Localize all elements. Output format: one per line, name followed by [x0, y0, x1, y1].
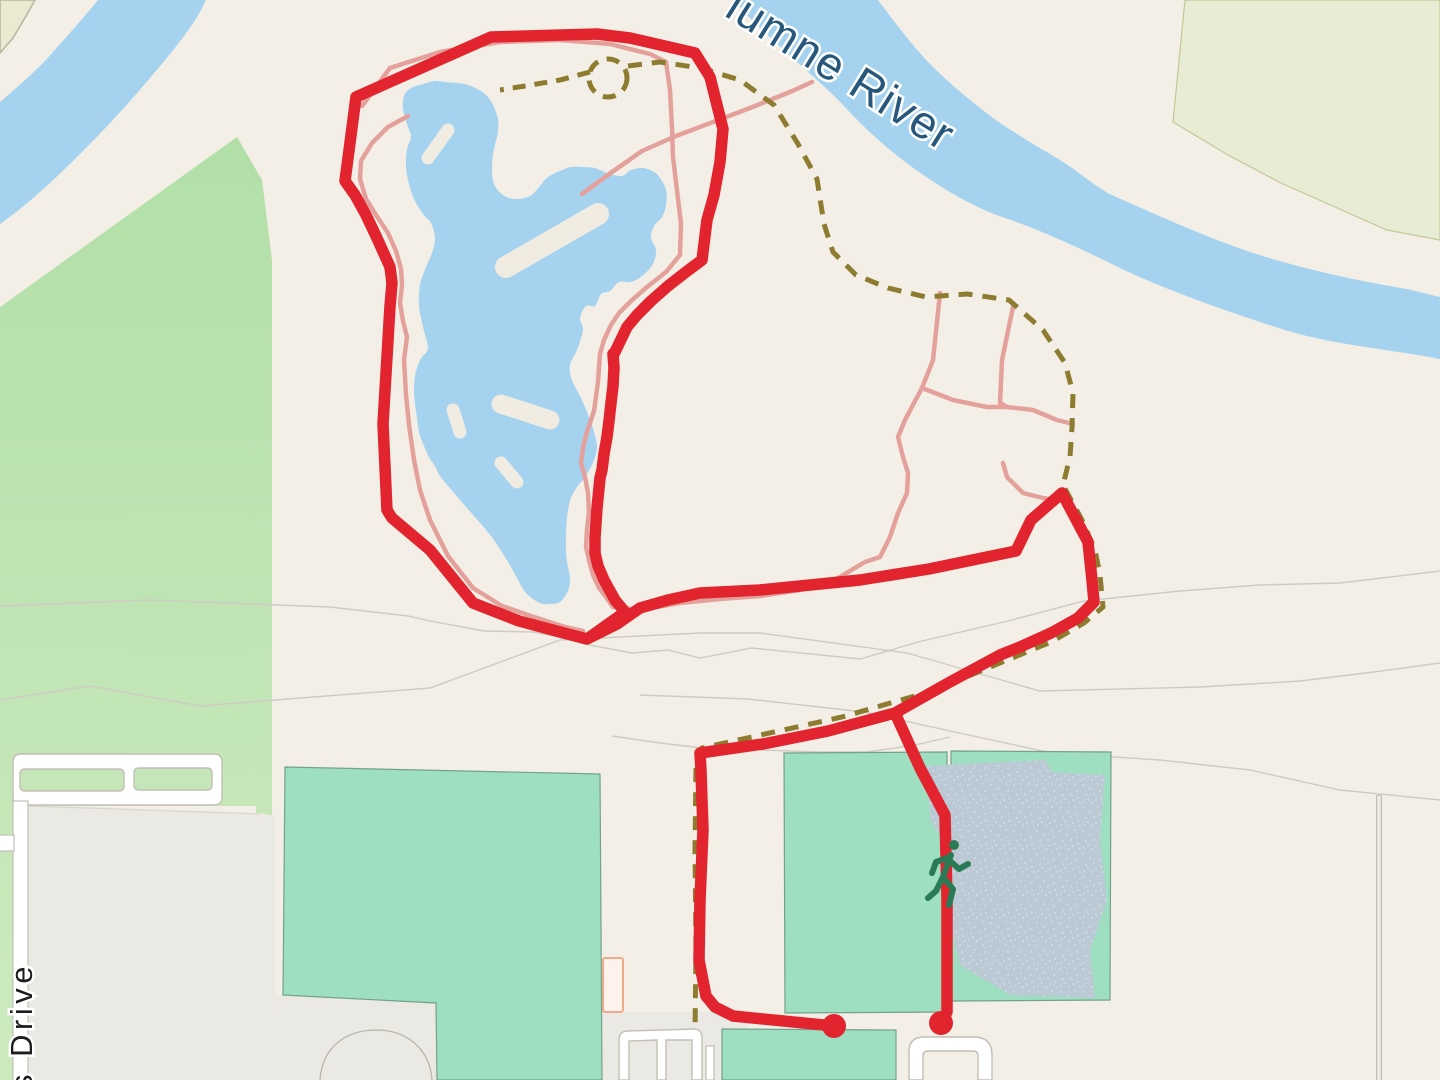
svg-text:s Drive: s Drive: [4, 962, 39, 1080]
